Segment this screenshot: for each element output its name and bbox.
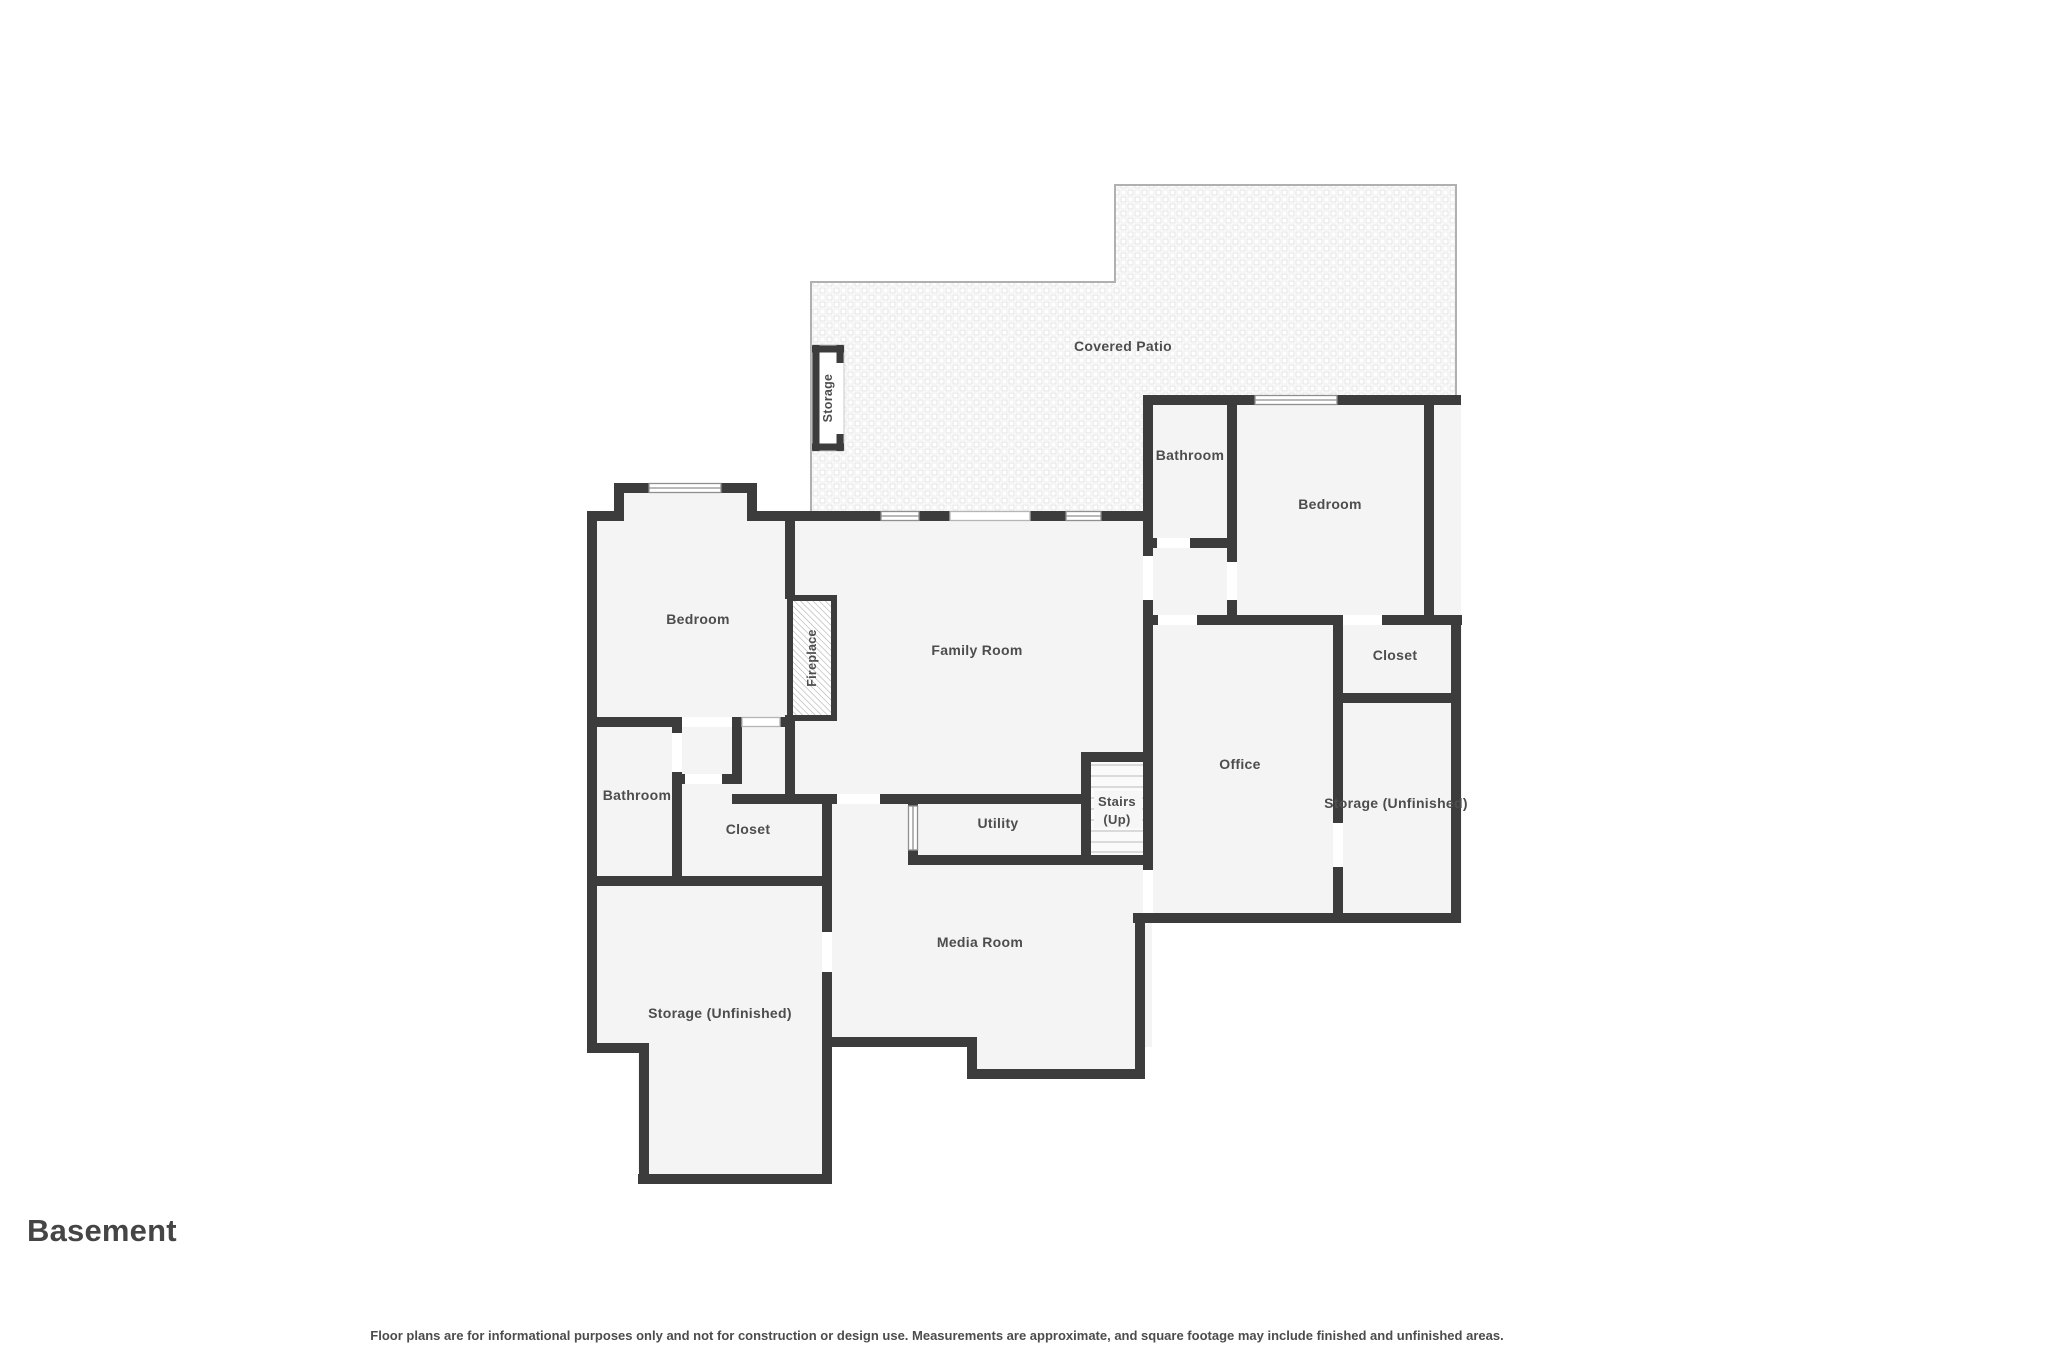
label-bedroom-right: Bedroom [1298, 496, 1362, 512]
label-storage-right: Storage (Unfinished) [1324, 795, 1468, 811]
room-floor-storage-bottom2 [638, 1043, 832, 1184]
label-bathroom-left: Bathroom [603, 787, 672, 803]
label-stairs-1: Stairs [1098, 794, 1136, 809]
label-family-room: Family Room [931, 642, 1022, 658]
label-storage-bottom: Storage (Unfinished) [648, 1005, 792, 1021]
window-bedroom-right [1255, 396, 1337, 405]
label-covered-patio: Covered Patio [1074, 338, 1172, 354]
window-family-room-1 [881, 512, 919, 521]
window-bedroom-left [649, 484, 721, 493]
door-bedroom-left [742, 718, 780, 727]
label-utility: Utility [978, 815, 1019, 831]
label-storage-patio: Storage [821, 374, 835, 423]
label-closet-left: Closet [726, 821, 771, 837]
label-bathroom-top: Bathroom [1156, 447, 1225, 463]
label-media-room: Media Room [937, 934, 1023, 950]
room-floor-storage-bottom [587, 876, 832, 1053]
sliding-door-patio [950, 512, 1030, 521]
label-fireplace: Fireplace [805, 629, 819, 687]
label-bedroom-left: Bedroom [666, 611, 730, 627]
label-office: Office [1219, 756, 1260, 772]
disclaimer-text: Floor plans are for informational purpos… [370, 1328, 1503, 1343]
door-utility [909, 806, 918, 850]
floor-plan-page: Covered Patio Storage Bathroom Bedroom B… [0, 0, 2048, 1365]
window-family-room-2 [1066, 512, 1101, 521]
floor-plan-drawing: Covered Patio Storage Bathroom Bedroom B… [0, 0, 2048, 1365]
label-stairs-2: (Up) [1103, 812, 1130, 827]
floor-title: Basement [27, 1213, 177, 1249]
label-closet-right: Closet [1373, 647, 1418, 663]
stairs [1091, 762, 1143, 860]
